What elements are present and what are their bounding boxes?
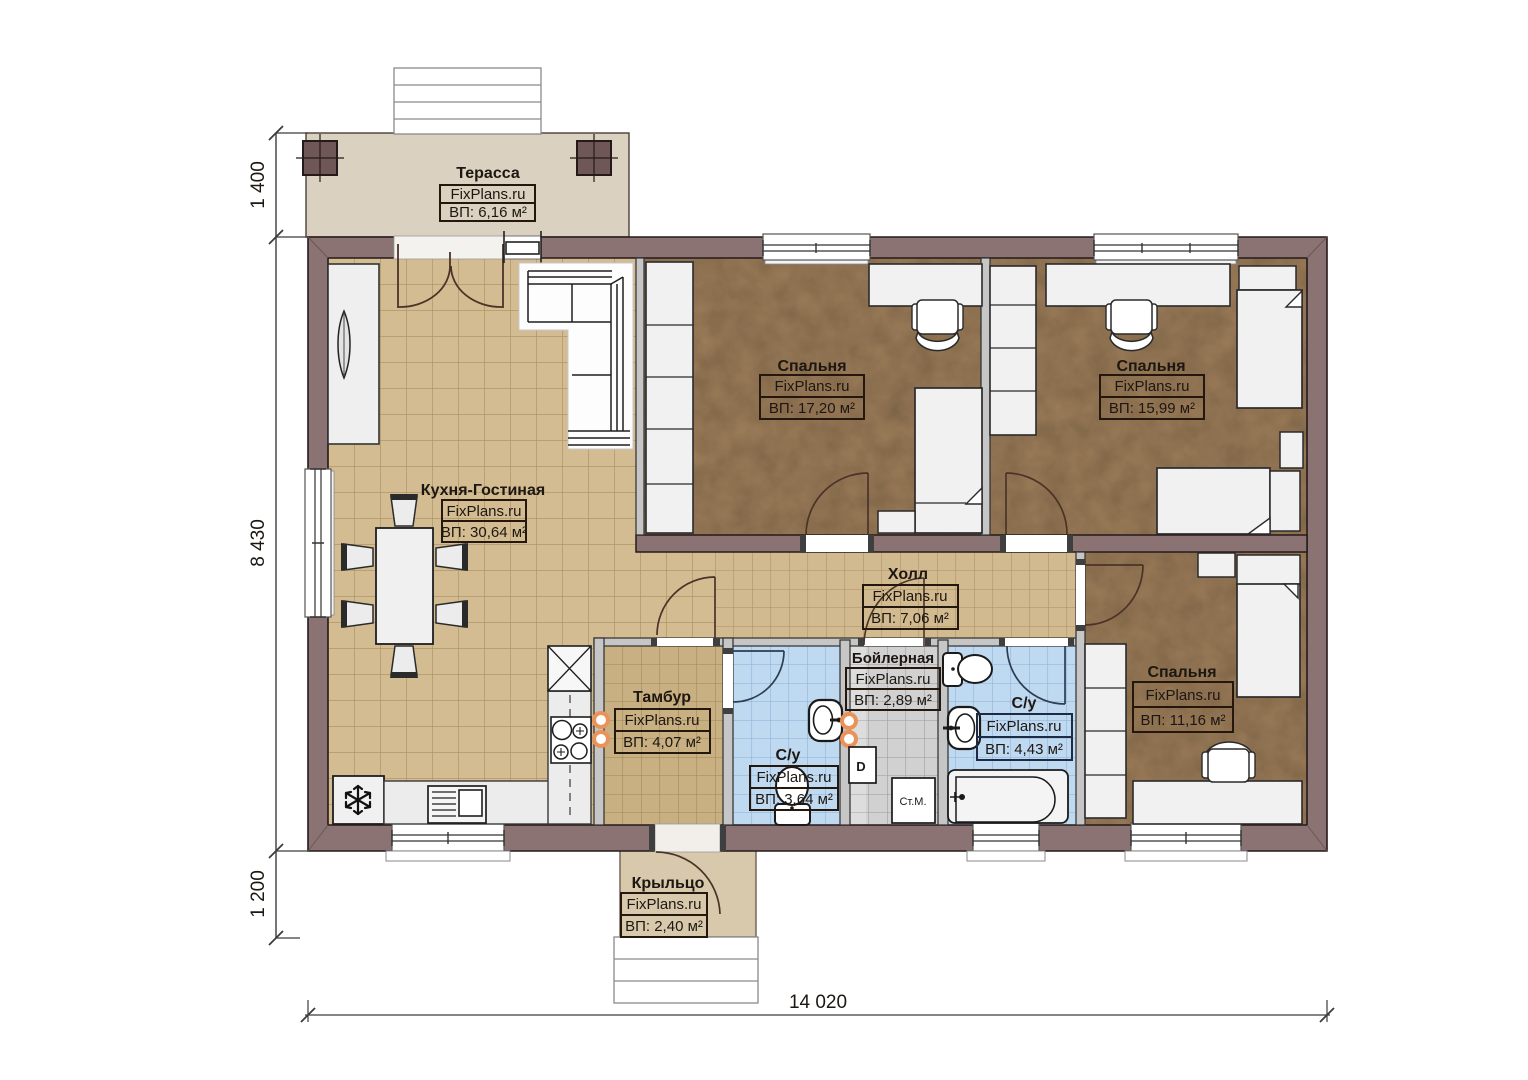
svg-text:8 430: 8 430 <box>248 519 269 567</box>
svg-text:Спальня: Спальня <box>1116 358 1185 375</box>
svg-text:FixPlans.ru: FixPlans.ru <box>624 712 699 729</box>
svg-text:Спальня: Спальня <box>1147 664 1216 681</box>
svg-text:Холл: Холл <box>888 566 928 583</box>
svg-text:ВП: 7,06 м²: ВП: 7,06 м² <box>871 610 949 627</box>
svg-text:FixPlans.ru: FixPlans.ru <box>446 503 521 520</box>
svg-text:Терасса: Терасса <box>456 165 520 182</box>
svg-text:Спальня: Спальня <box>777 358 846 375</box>
svg-text:ВП: 30,64 м²: ВП: 30,64 м² <box>441 524 527 541</box>
svg-text:FixPlans.ru: FixPlans.ru <box>986 718 1061 735</box>
svg-text:FixPlans.ru: FixPlans.ru <box>1114 378 1189 395</box>
svg-text:FixPlans.ru: FixPlans.ru <box>450 186 525 203</box>
svg-text:ВП: 6,16 м²: ВП: 6,16 м² <box>449 204 527 221</box>
svg-text:FixPlans.ru: FixPlans.ru <box>872 588 947 605</box>
svg-text:14 020: 14 020 <box>789 992 847 1013</box>
svg-text:ВП: 2,89 м²: ВП: 2,89 м² <box>854 692 932 709</box>
svg-text:ВП: 11,16 м²: ВП: 11,16 м² <box>1140 712 1225 729</box>
svg-text:Ст.М.: Ст.М. <box>899 796 926 808</box>
svg-text:ВП: 4,43 м²: ВП: 4,43 м² <box>985 741 1063 758</box>
svg-text:1 200: 1 200 <box>248 870 269 918</box>
svg-text:Крыльцо: Крыльцо <box>632 875 705 892</box>
svg-text:ВП: 17,20 м²: ВП: 17,20 м² <box>769 400 855 417</box>
svg-text:Кухня-Гостиная: Кухня-Гостиная <box>421 482 545 499</box>
svg-text:D: D <box>856 759 865 774</box>
svg-text:Тамбур: Тамбур <box>633 689 691 706</box>
svg-text:ВП: 2,40 м²: ВП: 2,40 м² <box>625 918 703 935</box>
svg-text:FixPlans.ru: FixPlans.ru <box>1145 687 1220 704</box>
svg-text:1 400: 1 400 <box>248 161 269 209</box>
svg-text:FixPlans.ru: FixPlans.ru <box>756 769 831 786</box>
svg-text:ВП: 4,07 м²: ВП: 4,07 м² <box>623 734 701 751</box>
svg-text:Бойлерная: Бойлерная <box>852 650 934 667</box>
svg-text:FixPlans.ru: FixPlans.ru <box>855 671 930 688</box>
svg-text:FixPlans.ru: FixPlans.ru <box>626 896 701 913</box>
svg-text:С/у: С/у <box>776 747 801 764</box>
svg-text:С/у: С/у <box>1012 695 1037 712</box>
svg-text:FixPlans.ru: FixPlans.ru <box>774 378 849 395</box>
svg-text:ВП: 15,99 м²: ВП: 15,99 м² <box>1109 400 1195 417</box>
svg-text:ВП: 3,64 м²: ВП: 3,64 м² <box>755 791 833 808</box>
